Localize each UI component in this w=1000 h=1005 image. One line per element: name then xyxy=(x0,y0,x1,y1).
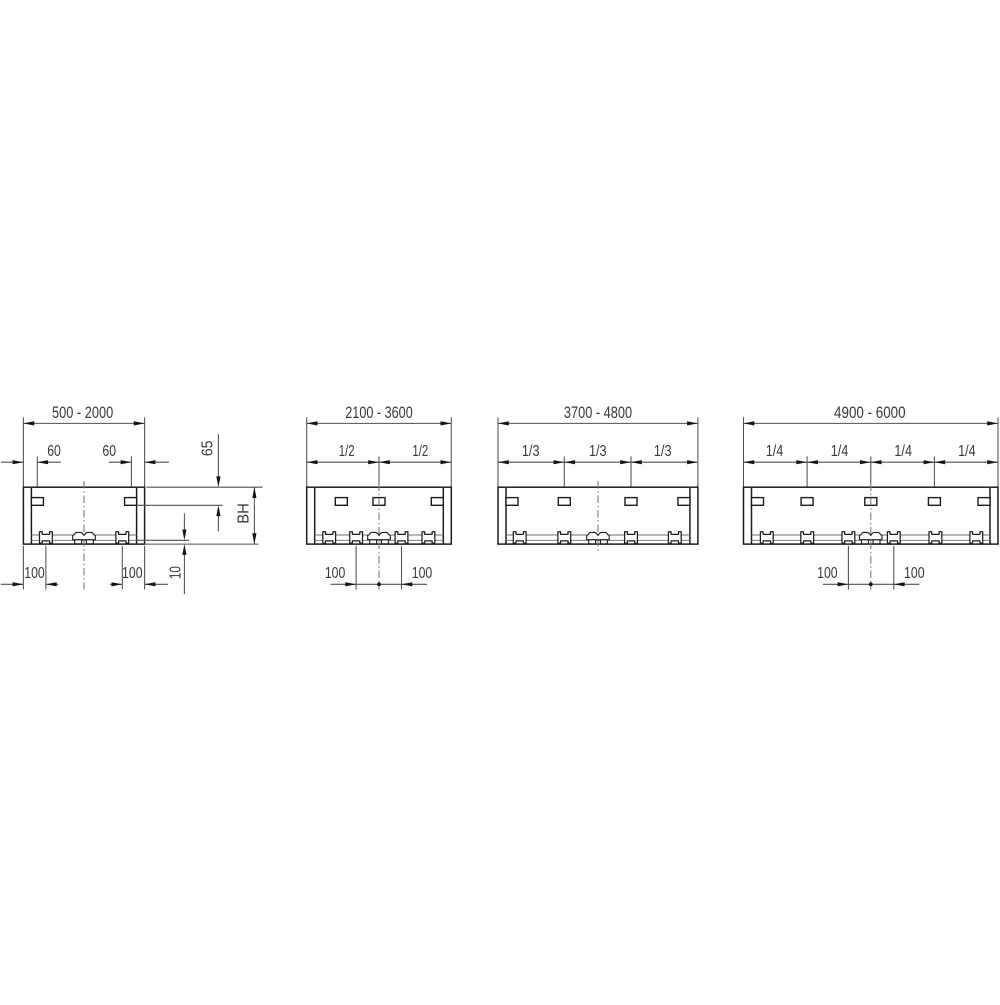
svg-text:500 - 2000: 500 - 2000 xyxy=(52,404,113,422)
svg-text:100: 100 xyxy=(24,565,45,582)
svg-text:1/4: 1/4 xyxy=(831,443,849,460)
svg-text:100: 100 xyxy=(904,565,925,582)
svg-text:100: 100 xyxy=(325,565,346,582)
svg-text:100: 100 xyxy=(122,565,143,582)
svg-text:BH: BH xyxy=(236,503,253,524)
svg-text:1/3: 1/3 xyxy=(522,443,540,460)
svg-text:1/2: 1/2 xyxy=(412,443,428,460)
svg-text:60: 60 xyxy=(102,443,116,460)
svg-text:2100 - 3600: 2100 - 3600 xyxy=(345,404,413,422)
svg-text:10: 10 xyxy=(168,566,185,579)
svg-text:100: 100 xyxy=(412,565,433,582)
svg-text:1/4: 1/4 xyxy=(894,443,912,460)
svg-text:100: 100 xyxy=(817,565,838,582)
svg-text:1/2: 1/2 xyxy=(339,443,355,460)
svg-text:65: 65 xyxy=(200,440,217,456)
svg-text:1/4: 1/4 xyxy=(958,443,976,460)
svg-text:1/3: 1/3 xyxy=(654,443,672,460)
svg-text:4900 - 6000: 4900 - 6000 xyxy=(834,404,906,422)
svg-text:1/4: 1/4 xyxy=(766,443,784,460)
svg-text:60: 60 xyxy=(47,443,61,460)
svg-text:3700 - 4800: 3700 - 4800 xyxy=(564,404,632,422)
svg-text:1/3: 1/3 xyxy=(589,443,607,460)
